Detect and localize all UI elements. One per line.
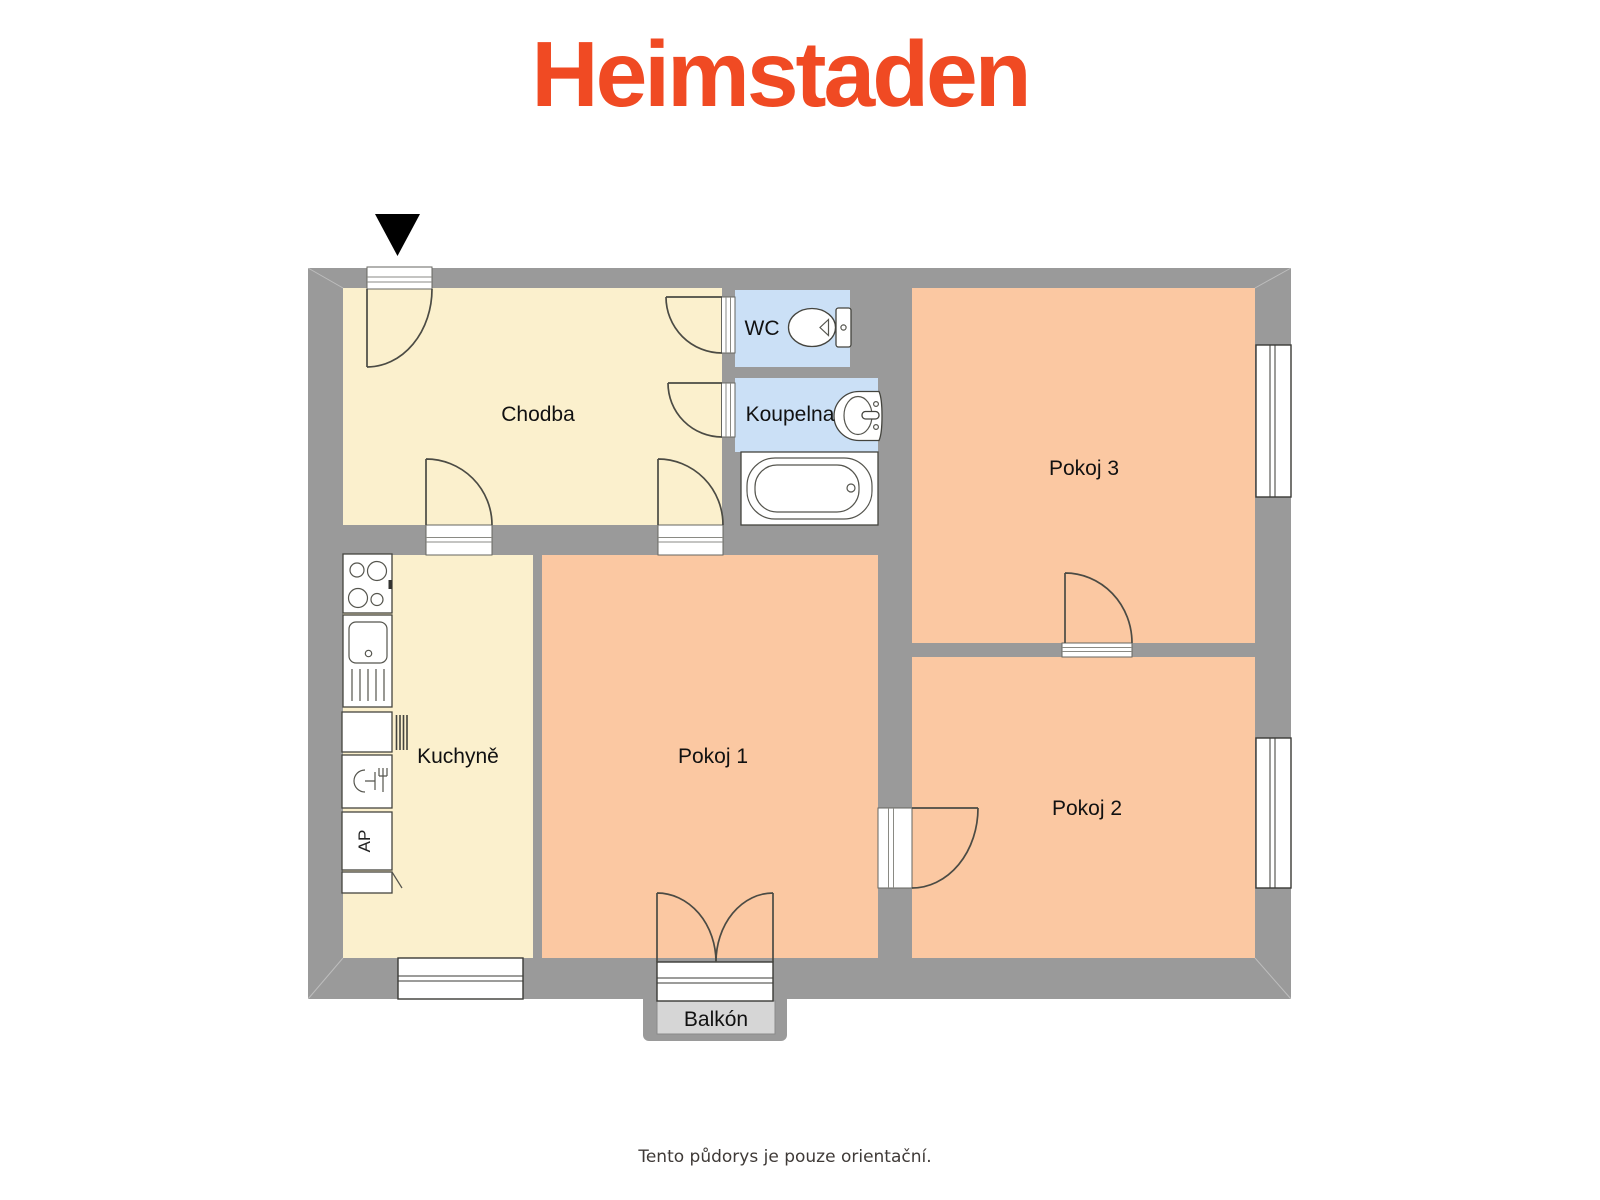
window-pokoj2 xyxy=(1256,738,1291,888)
floor-plan: AP Chodba WC Koupelna Pokoj 3 Kuchyně Po… xyxy=(0,0,1600,1200)
entrance-threshold xyxy=(367,267,432,289)
jamb-koupelna-door xyxy=(722,383,736,437)
bathtub-icon xyxy=(741,452,878,525)
dishwasher-icon xyxy=(342,755,392,808)
label-pokoj3: Pokoj 3 xyxy=(1049,457,1119,480)
label-chodba: Chodba xyxy=(501,403,575,426)
toilet-icon xyxy=(789,308,852,347)
label-balkon: Balkón xyxy=(684,1008,748,1031)
jamb-pokoj2-door xyxy=(878,808,912,888)
jamb-pokoj1-door xyxy=(658,525,723,555)
washbasin-icon xyxy=(834,392,882,441)
label-kuchyne: Kuchyně xyxy=(417,745,499,768)
jamb-wc-door xyxy=(722,297,736,353)
window-kuchyne xyxy=(398,958,523,999)
kitchen-sink-icon xyxy=(343,615,392,707)
label-pokoj1: Pokoj 1 xyxy=(678,745,748,768)
label-wc: WC xyxy=(745,317,780,340)
jamb-pokoj3-door xyxy=(1062,643,1132,657)
label-koupelna: Koupelna xyxy=(746,403,835,426)
washing-machine-label: AP xyxy=(355,830,374,853)
stove-icon xyxy=(343,554,392,613)
label-pokoj2: Pokoj 2 xyxy=(1052,797,1122,820)
entrance-arrow down-triangle-icon xyxy=(375,214,420,256)
window-pokoj3 xyxy=(1256,345,1291,497)
washing-machine-icon: AP xyxy=(342,812,392,870)
kitchen-counter xyxy=(342,712,392,752)
balcony-door-threshold xyxy=(657,962,773,1001)
page: { "brand": { "logo_text": "Heimstaden", … xyxy=(0,0,1600,1200)
disclaimer-text: Tento půdorys je pouze orientační. xyxy=(0,1147,1570,1167)
jamb-kuchyne-door xyxy=(426,525,492,555)
